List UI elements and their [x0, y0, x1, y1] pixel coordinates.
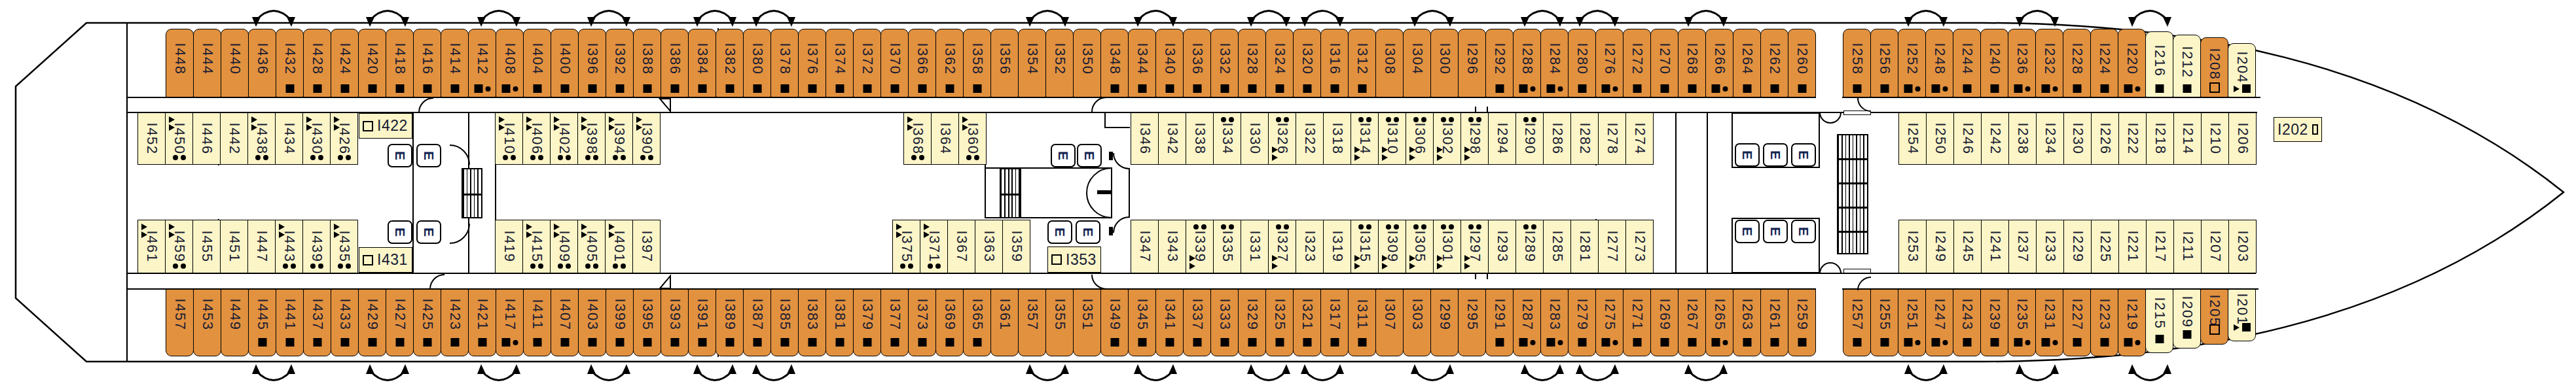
cabin-I262[interactable]: I262	[1760, 29, 1788, 97]
cabin-I383[interactable]: I383	[798, 289, 826, 356]
cabin-I241[interactable]: I241	[1981, 220, 2009, 273]
cabin-I287[interactable]: I287	[1513, 289, 1541, 356]
cabin-I329[interactable]: I329	[1238, 289, 1266, 356]
cabin-I426[interactable]: I426	[330, 112, 358, 165]
cabin-I335[interactable]: I335	[1213, 220, 1241, 273]
cabin-I369[interactable]: I369	[935, 289, 964, 356]
cabin-I366[interactable]: I366	[908, 29, 936, 97]
cabin-I393[interactable]: I393	[661, 289, 689, 356]
cabin-I411[interactable]: I411	[523, 289, 551, 356]
cabin-I219[interactable]: I219	[2118, 289, 2146, 356]
cabin-I420[interactable]: I420	[358, 29, 386, 97]
cabin-I224[interactable]: I224	[2090, 29, 2118, 97]
cabin-I372[interactable]: I372	[853, 29, 881, 97]
cabin-I368[interactable]: I368	[903, 112, 932, 165]
cabin-I427[interactable]: I427	[386, 289, 414, 356]
cabin-I314[interactable]: I314	[1351, 112, 1379, 165]
cabin-I453[interactable]: I453	[193, 289, 221, 356]
filled-square-icon	[1963, 338, 1971, 347]
cabin-I397[interactable]: I397	[632, 220, 661, 273]
cabin-I236[interactable]: I236	[2008, 29, 2036, 97]
cabin-I346[interactable]: I346	[1131, 112, 1159, 165]
cabin-I264[interactable]: I264	[1733, 29, 1761, 97]
cabin-I375[interactable]: I375	[892, 220, 920, 273]
cabin-I310[interactable]: I310	[1378, 112, 1406, 165]
cabin-I280[interactable]: I280	[1568, 29, 1596, 97]
cabin-I312[interactable]: I312	[1348, 29, 1376, 97]
cabin-I403[interactable]: I403	[578, 289, 606, 356]
cabin-I382[interactable]: I382	[716, 29, 744, 97]
cabin-I299[interactable]: I299	[1430, 289, 1459, 356]
cabin-I239[interactable]: I239	[1980, 289, 2008, 356]
cabin-I272[interactable]: I272	[1623, 29, 1651, 97]
cabin-I330[interactable]: I330	[1241, 112, 1269, 165]
cabin-I209[interactable]: I209	[2173, 289, 2201, 348]
cabin-number: I220	[2124, 43, 2141, 75]
cabin-I237[interactable]: I237	[2008, 220, 2037, 273]
cabin-I231[interactable]: I231	[2035, 289, 2063, 356]
cabin-number: I351	[1079, 299, 1096, 331]
cabin-I288[interactable]: I288	[1513, 29, 1541, 97]
cabin-I429[interactable]: I429	[358, 289, 386, 356]
cabin-I406[interactable]: I406	[522, 112, 551, 165]
cabin-I339[interactable]: I339	[1186, 220, 1214, 273]
cabin-I396[interactable]: I396	[578, 29, 606, 97]
cabin-I260[interactable]: I260	[1788, 29, 1816, 97]
cabin-I226[interactable]: I226	[2091, 112, 2119, 165]
cabin-I441[interactable]: I441	[276, 289, 304, 356]
cabin-I374[interactable]: I374	[825, 29, 854, 97]
cabin-I258[interactable]: I258	[1843, 29, 1871, 97]
filled-square-icon	[945, 84, 954, 93]
filled-square-icon	[1275, 84, 1284, 93]
cabin-I388[interactable]: I388	[633, 29, 661, 97]
cabin-I434[interactable]: I434	[275, 112, 303, 165]
cabin-I253[interactable]: I253	[1898, 220, 1927, 273]
cabin-I216[interactable]: I216	[2145, 31, 2173, 97]
cabin-I405[interactable]: I405	[577, 220, 606, 273]
cabin-I307[interactable]: I307	[1375, 289, 1404, 356]
open-square-icon	[363, 121, 373, 131]
cabin-I412[interactable]: I412	[468, 29, 496, 97]
arrowhead-icon	[728, 17, 736, 27]
cabin-I289[interactable]: I289	[1515, 220, 1544, 273]
cabin-I268[interactable]: I268	[1678, 29, 1706, 97]
cabin-I439[interactable]: I439	[302, 220, 331, 273]
cabin-I317[interactable]: I317	[1320, 289, 1349, 356]
cabin-I215[interactable]: I215	[2145, 289, 2173, 353]
arrowhead-icon	[1411, 364, 1419, 374]
cabin-I394[interactable]: I394	[605, 112, 633, 165]
cabin-I285[interactable]: I285	[1543, 220, 1571, 273]
filled-square-icon	[643, 338, 651, 347]
cabin-I266[interactable]: I266	[1705, 29, 1733, 97]
cabin-number: I270	[1656, 43, 1673, 75]
cabin-I265[interactable]: I265	[1705, 289, 1733, 356]
cabin-I402[interactable]: I402	[550, 112, 578, 165]
cabin-I347[interactable]: I347	[1131, 220, 1159, 273]
cabin-I297[interactable]: I297	[1460, 220, 1489, 273]
cabin-I273[interactable]: I273	[1625, 220, 1654, 273]
cabin-number: I311	[1354, 299, 1371, 330]
cabin-I385[interactable]: I385	[771, 289, 799, 356]
cabin-I430[interactable]: I430	[302, 112, 331, 165]
cabin-I293[interactable]: I293	[1488, 220, 1516, 273]
cabin-I221[interactable]: I221	[2118, 220, 2147, 273]
cabin-I296[interactable]: I296	[1458, 29, 1486, 97]
cabin-I305[interactable]: I305	[1406, 220, 1434, 273]
cabin-I269[interactable]: I269	[1650, 289, 1678, 356]
cabin-I389[interactable]: I389	[716, 289, 744, 356]
cabin-I419[interactable]: I419	[495, 220, 523, 273]
cabin-I292[interactable]: I292	[1485, 29, 1514, 97]
filled-square-icon	[1275, 338, 1284, 347]
cabin-I217[interactable]: I217	[2146, 220, 2174, 273]
cabin-I447[interactable]: I447	[247, 220, 276, 273]
cabin-I291[interactable]: I291	[1485, 289, 1514, 356]
cabin-I428[interactable]: I428	[303, 29, 331, 97]
filled-square-icon	[2100, 84, 2109, 93]
cabin-I207[interactable]: I207	[2201, 220, 2229, 273]
cabin-I401[interactable]: I401	[605, 220, 633, 273]
filled-square-icon	[1880, 84, 1889, 93]
cabin-I254[interactable]: I254	[1898, 112, 1927, 165]
cabin-I316[interactable]: I316	[1320, 29, 1349, 97]
cabin-I440[interactable]: I440	[221, 29, 249, 97]
filled-square-icon	[1495, 84, 1504, 93]
cabin-number: I250	[1932, 123, 1949, 155]
filled-square-icon	[1248, 338, 1256, 347]
cabin-I306[interactable]: I306	[1406, 112, 1434, 165]
cabin-I418[interactable]: I418	[386, 29, 414, 97]
cabin-I337[interactable]: I337	[1183, 289, 1211, 356]
cabin-I387[interactable]: I387	[743, 289, 771, 356]
arrowhead-icon	[1684, 17, 1693, 27]
cabin-I332[interactable]: I332	[1210, 29, 1239, 97]
cabin-I344[interactable]: I344	[1128, 29, 1156, 97]
elevator-icon: E	[388, 144, 412, 167]
cabin-I256[interactable]: I256	[1870, 29, 1898, 97]
door-arc	[1114, 217, 1129, 233]
cabin-I395[interactable]: I395	[633, 289, 661, 356]
cabin-I410[interactable]: I410	[495, 112, 523, 165]
cabin-number: I334	[1219, 123, 1236, 155]
cabin-I438[interactable]: I438	[247, 112, 276, 165]
cabin-I345[interactable]: I345	[1128, 289, 1156, 356]
cabin-I350[interactable]: I350	[1073, 29, 1101, 97]
cabin-I425[interactable]: I425	[413, 289, 441, 356]
cabin-I247[interactable]: I247	[1925, 289, 1953, 356]
cabin-I408[interactable]: I408	[496, 29, 524, 97]
filled-square-icon	[560, 84, 569, 93]
cabin-I203[interactable]: I203	[2228, 220, 2257, 273]
double-triangle-icon	[554, 224, 560, 238]
cabin-I238[interactable]: I238	[2008, 112, 2037, 165]
cabin-I257[interactable]: I257	[1843, 289, 1871, 356]
cabin-I331[interactable]: I331	[1241, 220, 1269, 273]
cabin-I361[interactable]: I361	[990, 289, 1019, 356]
cabin-number: I338	[1191, 123, 1208, 155]
arrowhead-icon	[2050, 17, 2059, 27]
cabin-I443[interactable]: I443	[275, 220, 303, 273]
cabin-I248[interactable]: I248	[1925, 29, 1953, 97]
square-dot-icon	[1931, 84, 1948, 93]
cabin-I223[interactable]: I223	[2090, 289, 2118, 356]
cabin-I377[interactable]: I377	[880, 289, 909, 356]
cabin-I325[interactable]: I325	[1265, 289, 1294, 356]
cabin-I270[interactable]: I270	[1650, 29, 1678, 97]
cabin-I201[interactable]: I201	[2228, 289, 2256, 341]
filled-square-icon	[1578, 338, 1586, 347]
cabin-I282[interactable]: I282	[1570, 112, 1599, 165]
cabin-I311[interactable]: I311	[1348, 289, 1376, 356]
cabin-I290[interactable]: I290	[1515, 112, 1544, 165]
cabin-I252[interactable]: I252	[1898, 29, 1926, 97]
cabin-I279[interactable]: I279	[1568, 289, 1596, 356]
cabin-I302[interactable]: I302	[1433, 112, 1461, 165]
cabin-I240[interactable]: I240	[1980, 29, 2008, 97]
cabin-I363[interactable]: I363	[975, 220, 1003, 273]
cabin-I318[interactable]: I318	[1323, 112, 1351, 165]
cabin-I210[interactable]: I210	[2201, 112, 2229, 165]
cabin-I414[interactable]: I414	[441, 29, 469, 97]
cabin-I328[interactable]: I328	[1238, 29, 1266, 97]
double-triangle-icon	[1189, 255, 1195, 269]
cabin-I421[interactable]: I421	[468, 289, 496, 356]
cabin-I274[interactable]: I274	[1625, 112, 1654, 165]
cabin-I222[interactable]: I222	[2118, 112, 2147, 165]
cabin-I205[interactable]: I205	[2200, 289, 2228, 345]
cabin-I259[interactable]: I259	[1788, 289, 1816, 356]
cabin-I404[interactable]: I404	[523, 29, 551, 97]
cabin-I342[interactable]: I342	[1158, 112, 1186, 165]
cabin-I354[interactable]: I354	[1018, 29, 1046, 97]
cabin-I409[interactable]: I409	[550, 220, 578, 273]
cabin-I378[interactable]: I378	[771, 29, 799, 97]
arrowhead-icon	[1061, 364, 1069, 374]
cabin-I364[interactable]: I364	[931, 112, 959, 165]
cabin-I362[interactable]: I362	[935, 29, 964, 97]
cabin-number: I303	[1409, 299, 1426, 331]
cabin-I320[interactable]: I320	[1293, 29, 1321, 97]
cabin-I286[interactable]: I286	[1543, 112, 1571, 165]
cabin-I398[interactable]: I398	[577, 112, 606, 165]
cabin-I218[interactable]: I218	[2146, 112, 2174, 165]
cabin-I301[interactable]: I301	[1433, 220, 1461, 273]
cabin-I360[interactable]: I360	[958, 112, 987, 165]
cabin-I445[interactable]: I445	[248, 289, 276, 356]
cabin-I242[interactable]: I242	[1981, 112, 2009, 165]
cabin-I457[interactable]: I457	[166, 289, 194, 356]
cabin-I204[interactable]: I204	[2228, 43, 2256, 97]
cabin-I450[interactable]: I450	[165, 112, 193, 165]
cabin-I455[interactable]: I455	[192, 220, 221, 273]
cabin-I277[interactable]: I277	[1598, 220, 1626, 273]
cabin-I243[interactable]: I243	[1953, 289, 1981, 356]
cabin-I353[interactable]: I353	[1047, 246, 1101, 273]
cabin-I442[interactable]: I442	[220, 112, 248, 165]
cabin-I348[interactable]: I348	[1100, 29, 1129, 97]
cabin-I390[interactable]: I390	[632, 112, 661, 165]
cabin-I245[interactable]: I245	[1953, 220, 1982, 273]
cabin-I327[interactable]: I327	[1268, 220, 1296, 273]
cabin-I352[interactable]: I352	[1045, 29, 1074, 97]
cabin-I399[interactable]: I399	[606, 289, 634, 356]
cabin-I341[interactable]: I341	[1155, 289, 1184, 356]
cabin-I229[interactable]: I229	[2063, 220, 2092, 273]
cabin-I267[interactable]: I267	[1678, 289, 1706, 356]
cabin-I255[interactable]: I255	[1870, 289, 1898, 356]
cabin-I283[interactable]: I283	[1540, 289, 1569, 356]
filled-square-icon	[1330, 338, 1339, 347]
cabin-I379[interactable]: I379	[853, 289, 881, 356]
cabin-I351[interactable]: I351	[1073, 289, 1101, 356]
cabin-I431[interactable]: I431	[359, 247, 412, 273]
cabin-I446[interactable]: I446	[192, 112, 221, 165]
cabin-I380[interactable]: I380	[743, 29, 771, 97]
cabin-I275[interactable]: I275	[1595, 289, 1624, 356]
cabin-I202[interactable]: I202	[2274, 117, 2322, 142]
cabin-I343[interactable]: I343	[1158, 220, 1186, 273]
cabin-I315[interactable]: I315	[1351, 220, 1379, 273]
cabin-I319[interactable]: I319	[1323, 220, 1351, 273]
cabin-I324[interactable]: I324	[1265, 29, 1294, 97]
cabin-I340[interactable]: I340	[1155, 29, 1184, 97]
cabin-number: I264	[1739, 43, 1756, 75]
cabin-I358[interactable]: I358	[963, 29, 991, 97]
cabin-I234[interactable]: I234	[2036, 112, 2064, 165]
rotation-arrow-icon	[256, 11, 291, 21]
cabin-I303[interactable]: I303	[1403, 289, 1431, 356]
cabin-I459[interactable]: I459	[165, 220, 193, 273]
filled-square-icon	[890, 84, 899, 93]
cabin-I321[interactable]: I321	[1293, 289, 1321, 356]
cabin-I357[interactable]: I357	[1018, 289, 1046, 356]
double-triangle-icon	[334, 224, 340, 238]
filled-square-icon	[2183, 330, 2191, 339]
cabin-I433[interactable]: I433	[331, 289, 359, 356]
cabin-I244[interactable]: I244	[1953, 29, 1981, 97]
cabin-I309[interactable]: I309	[1378, 220, 1406, 273]
cabin-I278[interactable]: I278	[1598, 112, 1626, 165]
cabin-number: I437	[309, 299, 326, 331]
cabin-I336[interactable]: I336	[1183, 29, 1211, 97]
cabin-I349[interactable]: I349	[1100, 289, 1129, 356]
cabin-I444[interactable]: I444	[193, 29, 221, 97]
cabin-number: I330	[1246, 123, 1263, 155]
cabin-I212[interactable]: I212	[2173, 35, 2201, 97]
cabin-I251[interactable]: I251	[1898, 289, 1926, 356]
filled-square-icon	[1138, 338, 1146, 347]
cabin-I206[interactable]: I206	[2228, 112, 2257, 165]
double-triangle-icon	[1409, 146, 1415, 161]
cabin-I432[interactable]: I432	[276, 29, 304, 97]
cabin-I261[interactable]: I261	[1760, 289, 1788, 356]
cabin-I323[interactable]: I323	[1296, 220, 1324, 273]
cabin-I230[interactable]: I230	[2063, 112, 2092, 165]
cabin-I435[interactable]: I435	[330, 220, 358, 273]
cabin-I461[interactable]: I461	[137, 220, 166, 273]
cabin-I227[interactable]: I227	[2063, 289, 2091, 356]
cabin-I356[interactable]: I356	[990, 29, 1019, 97]
cabin-I232[interactable]: I232	[2035, 29, 2063, 97]
cabin-I250[interactable]: I250	[1926, 112, 1954, 165]
cabin-I214[interactable]: I214	[2173, 112, 2202, 165]
cabin-I295[interactable]: I295	[1458, 289, 1486, 356]
cabin-I392[interactable]: I392	[606, 29, 634, 97]
cabin-I365[interactable]: I365	[963, 289, 991, 356]
cabin-I276[interactable]: I276	[1595, 29, 1624, 97]
cabin-I220[interactable]: I220	[2118, 29, 2146, 97]
cabin-I381[interactable]: I381	[825, 289, 854, 356]
cabin-number: I364	[937, 123, 954, 155]
cabin-I417[interactable]: I417	[496, 289, 524, 356]
cabin-I284[interactable]: I284	[1540, 29, 1569, 97]
cabin-I400[interactable]: I400	[551, 29, 579, 97]
cabin-I298[interactable]: I298	[1460, 112, 1489, 165]
cabin-I334[interactable]: I334	[1213, 112, 1241, 165]
arrowhead-icon	[1576, 364, 1584, 374]
cabin-I304[interactable]: I304	[1403, 29, 1431, 97]
cabin-number: I259	[1794, 299, 1811, 331]
cabin-I225[interactable]: I225	[2091, 220, 2119, 273]
cabin-I452[interactable]: I452	[137, 112, 166, 165]
cabin-I322[interactable]: I322	[1296, 112, 1324, 165]
cabin-I263[interactable]: I263	[1733, 289, 1761, 356]
cabin-I208[interactable]: I208	[2200, 37, 2228, 97]
cabin-I449[interactable]: I449	[221, 289, 249, 356]
cabin-I451[interactable]: I451	[220, 220, 248, 273]
cabin-I436[interactable]: I436	[248, 29, 276, 97]
cabin-I370[interactable]: I370	[880, 29, 909, 97]
cabin-I376[interactable]: I376	[798, 29, 826, 97]
door-arc	[1114, 153, 1129, 169]
cabin-I371[interactable]: I371	[920, 220, 948, 273]
cabin-I281[interactable]: I281	[1570, 220, 1599, 273]
cabin-I338[interactable]: I338	[1186, 112, 1214, 165]
cabin-I228[interactable]: I228	[2063, 29, 2091, 97]
cabin-I437[interactable]: I437	[303, 289, 331, 356]
cabin-I308[interactable]: I308	[1375, 29, 1404, 97]
cabin-I373[interactable]: I373	[908, 289, 936, 356]
cabin-I407[interactable]: I407	[551, 289, 579, 356]
cabin-I271[interactable]: I271	[1623, 289, 1651, 356]
cabin-I423[interactable]: I423	[441, 289, 469, 356]
cabin-I294[interactable]: I294	[1488, 112, 1516, 165]
cabin-I300[interactable]: I300	[1430, 29, 1459, 97]
cabin-I246[interactable]: I246	[1953, 112, 1982, 165]
cabin-I211[interactable]: I211	[2173, 220, 2202, 273]
double-dot-icon	[1523, 117, 1536, 122]
cabin-I233[interactable]: I233	[2036, 220, 2064, 273]
cabin-I367[interactable]: I367	[947, 220, 975, 273]
cabin-I326[interactable]: I326	[1268, 112, 1296, 165]
cabin-I235[interactable]: I235	[2008, 289, 2036, 356]
cabin-I386[interactable]: I386	[661, 29, 689, 97]
cabin-I355[interactable]: I355	[1045, 289, 1074, 356]
cabin-I448[interactable]: I448	[166, 29, 194, 97]
cabin-I384[interactable]: I384	[688, 29, 716, 97]
cabin-I249[interactable]: I249	[1926, 220, 1954, 273]
cabin-I424[interactable]: I424	[331, 29, 359, 97]
cabin-I359[interactable]: I359	[1002, 220, 1030, 273]
cabin-I333[interactable]: I333	[1210, 289, 1239, 356]
cabin-I415[interactable]: I415	[522, 220, 551, 273]
cabin-I422[interactable]: I422	[359, 113, 412, 139]
cabin-number: I403	[584, 299, 601, 331]
cabin-I416[interactable]: I416	[413, 29, 441, 97]
cabin-I391[interactable]: I391	[688, 289, 716, 356]
